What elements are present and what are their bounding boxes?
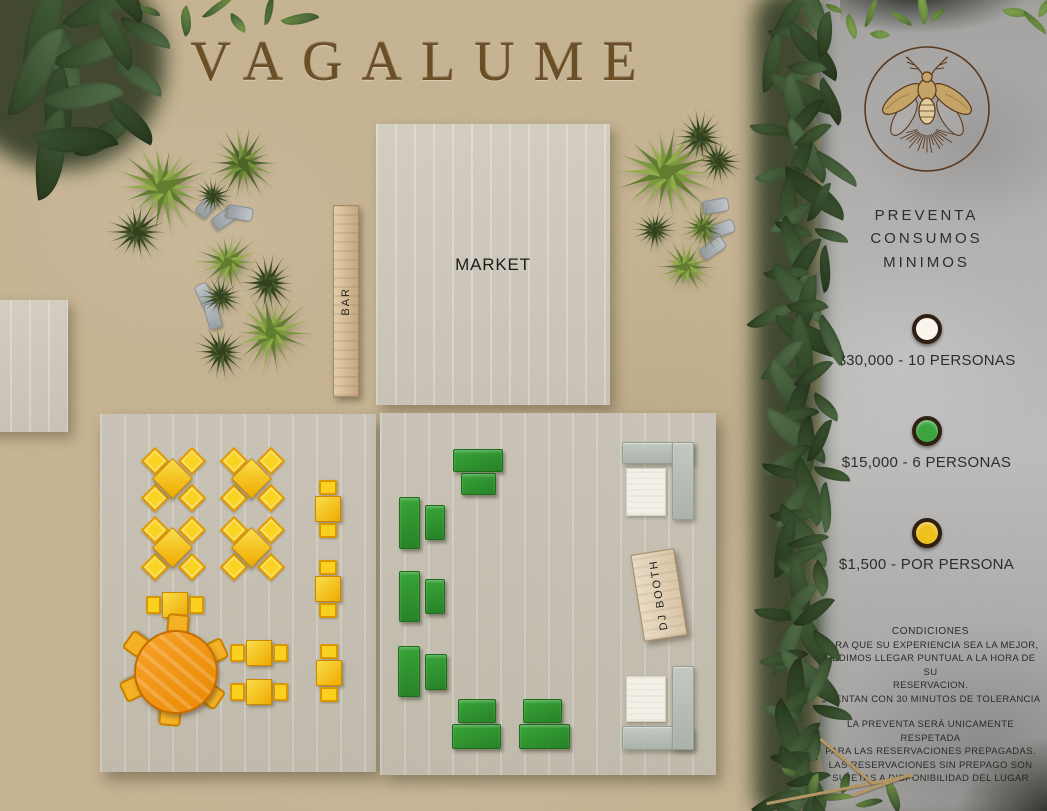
chair [319, 560, 337, 575]
table-4-seats [145, 520, 199, 574]
sofa-cushion [626, 468, 666, 516]
chair [230, 683, 245, 701]
firefly-logo [862, 43, 992, 180]
info-panel: PREVENTA CONSUMOS MINIMOS $30,000 - 10 P… [806, 0, 1047, 811]
chair [146, 596, 161, 614]
vagalume-venue-map: VAGALUME MARKET BAR DJ BOOTH [0, 0, 1047, 811]
white-tier-dot [912, 314, 942, 344]
sofa-cushion [626, 676, 666, 722]
table-4-seats [224, 520, 278, 574]
table-top [134, 630, 218, 714]
conditions-paragraph-2: LA PREVENTA SERÁ UNICAMENTE RESPETADA PA… [818, 718, 1043, 785]
chair [273, 644, 288, 662]
green-sofa [452, 724, 501, 749]
green-sofa [458, 699, 496, 723]
table-4-seats [145, 451, 199, 505]
green-tier-label: $15,000 - 6 PERSONAS [842, 454, 1011, 471]
table-top [315, 576, 341, 602]
green-sofa [399, 571, 420, 622]
chair [273, 683, 288, 701]
chair [319, 480, 337, 495]
chair [320, 687, 338, 702]
green-sofa [425, 654, 447, 690]
table-2-seats [230, 679, 288, 705]
table-2-seats [230, 640, 288, 666]
chair [189, 596, 204, 614]
chair [320, 644, 338, 659]
green-sofa [399, 497, 420, 549]
conditions-paragraph-1: PARA QUE SU EXPERIENCIA SEA LA MEJOR, PE… [818, 639, 1043, 706]
table-2-seats [315, 480, 341, 538]
sun-lounger [702, 197, 730, 215]
table-4-seats [224, 451, 278, 505]
sun-lounger [698, 235, 727, 261]
table-top [246, 679, 272, 705]
table-top [246, 640, 272, 666]
chair [319, 523, 337, 538]
legend-item-yellow: $1,500 - POR PERSONA [806, 518, 1047, 573]
green-sofa [453, 449, 503, 472]
green-sofa [523, 699, 562, 723]
green-tier-dot [912, 416, 942, 446]
table-top [315, 496, 341, 522]
yellow-tier-dot [912, 518, 942, 548]
dj-booth-label: DJ BOOTH [647, 559, 670, 632]
white-tier-label: $30,000 - 10 PERSONAS [837, 352, 1015, 369]
conditions-block: CONDICIONES PARA QUE SU EXPERIENCIA SEA … [818, 626, 1043, 786]
white-corner-sofa [622, 442, 694, 520]
table-2-seats [315, 560, 341, 618]
sun-lounger [203, 302, 223, 331]
legend-item-white: $30,000 - 10 PERSONAS [806, 314, 1047, 369]
table-top [316, 660, 342, 686]
yellow-tier-label: $1,500 - POR PERSONA [839, 556, 1014, 573]
green-sofa [425, 505, 445, 540]
white-corner-sofa [622, 666, 694, 750]
sun-lounger [707, 218, 736, 240]
chair [319, 603, 337, 618]
sofa-back [672, 442, 694, 520]
green-sofa [425, 579, 445, 614]
panel-heading: PREVENTA CONSUMOS MINIMOS [806, 204, 1047, 274]
green-sofa [461, 473, 496, 495]
conditions-title: CONDICIONES [818, 626, 1043, 637]
green-sofa [398, 646, 420, 697]
chair [230, 644, 245, 662]
legend-item-green: $15,000 - 6 PERSONAS [806, 416, 1047, 471]
green-sofa [519, 724, 570, 749]
table-2-seats [316, 644, 342, 702]
round-table-6-seats [122, 618, 226, 722]
sofa-back [672, 666, 694, 750]
